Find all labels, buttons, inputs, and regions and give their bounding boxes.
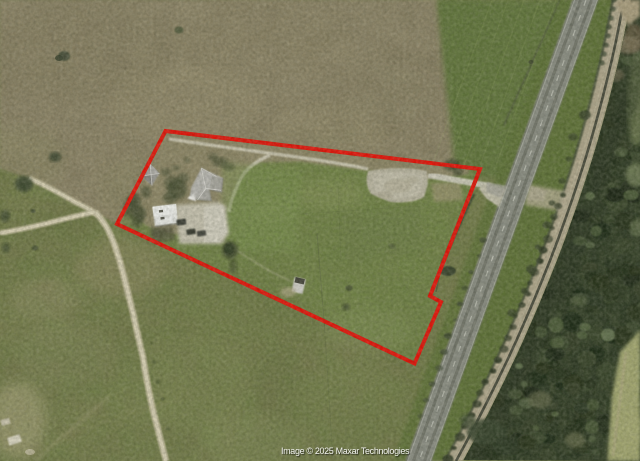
svg-text:Image © 2025 Maxar Technologie: Image © 2025 Maxar Technologies (281, 446, 410, 456)
